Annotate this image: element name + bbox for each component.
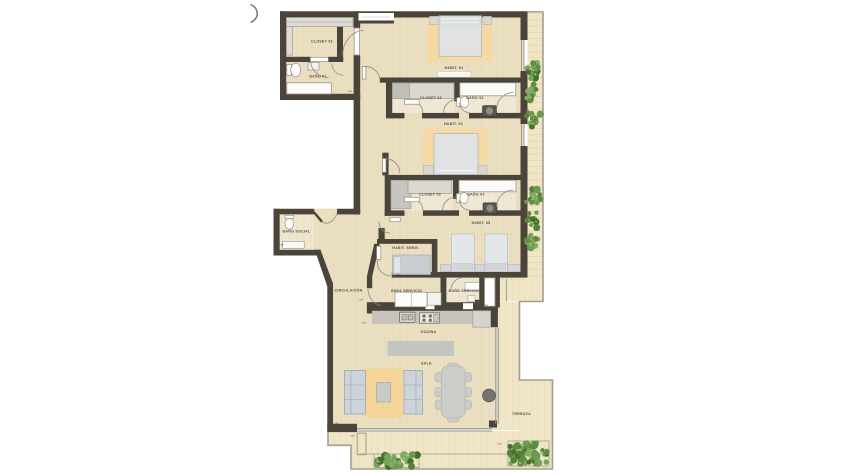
svg-text:0.90: 0.90 xyxy=(511,212,516,215)
svg-text:ÁREA SERVICIO: ÁREA SERVICIO xyxy=(391,288,422,293)
svg-text:4.50: 4.50 xyxy=(288,15,293,18)
svg-text:2.55: 2.55 xyxy=(393,115,398,118)
svg-text:2.90: 2.90 xyxy=(393,79,398,82)
svg-text:1.40: 1.40 xyxy=(362,322,367,325)
svg-text:CLOSET 01: CLOSET 01 xyxy=(311,40,333,44)
svg-text:TERRAZA: TERRAZA xyxy=(512,412,531,416)
svg-text:0.35: 0.35 xyxy=(350,434,355,437)
svg-text:CLOSET 02: CLOSET 02 xyxy=(420,96,442,100)
svg-text:0.90: 0.90 xyxy=(511,177,516,180)
svg-text:2.60: 2.60 xyxy=(382,241,387,244)
svg-text:BAÑO 03: BAÑO 03 xyxy=(467,192,484,197)
svg-text:CLOSET 03: CLOSET 03 xyxy=(419,193,441,197)
svg-text:1.40: 1.40 xyxy=(483,304,488,307)
svg-text:SALA: SALA xyxy=(421,362,432,366)
svg-text:BAÑO SERVICIO: BAÑO SERVICIO xyxy=(449,288,481,293)
svg-text:0.90: 0.90 xyxy=(511,79,516,82)
svg-text:HABIT. 01: HABIT. 01 xyxy=(445,66,464,70)
svg-text:BAÑO 02: BAÑO 02 xyxy=(466,95,483,100)
svg-text:COCINA: COCINA xyxy=(421,330,437,334)
svg-text:HABIT. SERVI.: HABIT. SERVI. xyxy=(392,246,420,250)
svg-text:1.30: 1.30 xyxy=(358,299,363,302)
svg-text:BAÑO SOCIAL: BAÑO SOCIAL xyxy=(283,229,311,234)
svg-text:HABIT. 02: HABIT. 02 xyxy=(444,122,463,126)
svg-text:BAÑO 01: BAÑO 01 xyxy=(309,74,326,79)
svg-text:2.55: 2.55 xyxy=(391,177,396,180)
svg-text:0.90: 0.90 xyxy=(511,115,516,118)
svg-text:2.05: 2.05 xyxy=(395,274,400,277)
svg-text:1.15: 1.15 xyxy=(334,422,339,425)
svg-text:2.05: 2.05 xyxy=(497,443,502,446)
svg-text:CIRCULACIÓN: CIRCULACIÓN xyxy=(335,288,363,293)
svg-text:2.55: 2.55 xyxy=(391,212,396,215)
svg-text:HABIT. 03: HABIT. 03 xyxy=(472,221,491,225)
svg-text:1.60: 1.60 xyxy=(279,244,284,247)
